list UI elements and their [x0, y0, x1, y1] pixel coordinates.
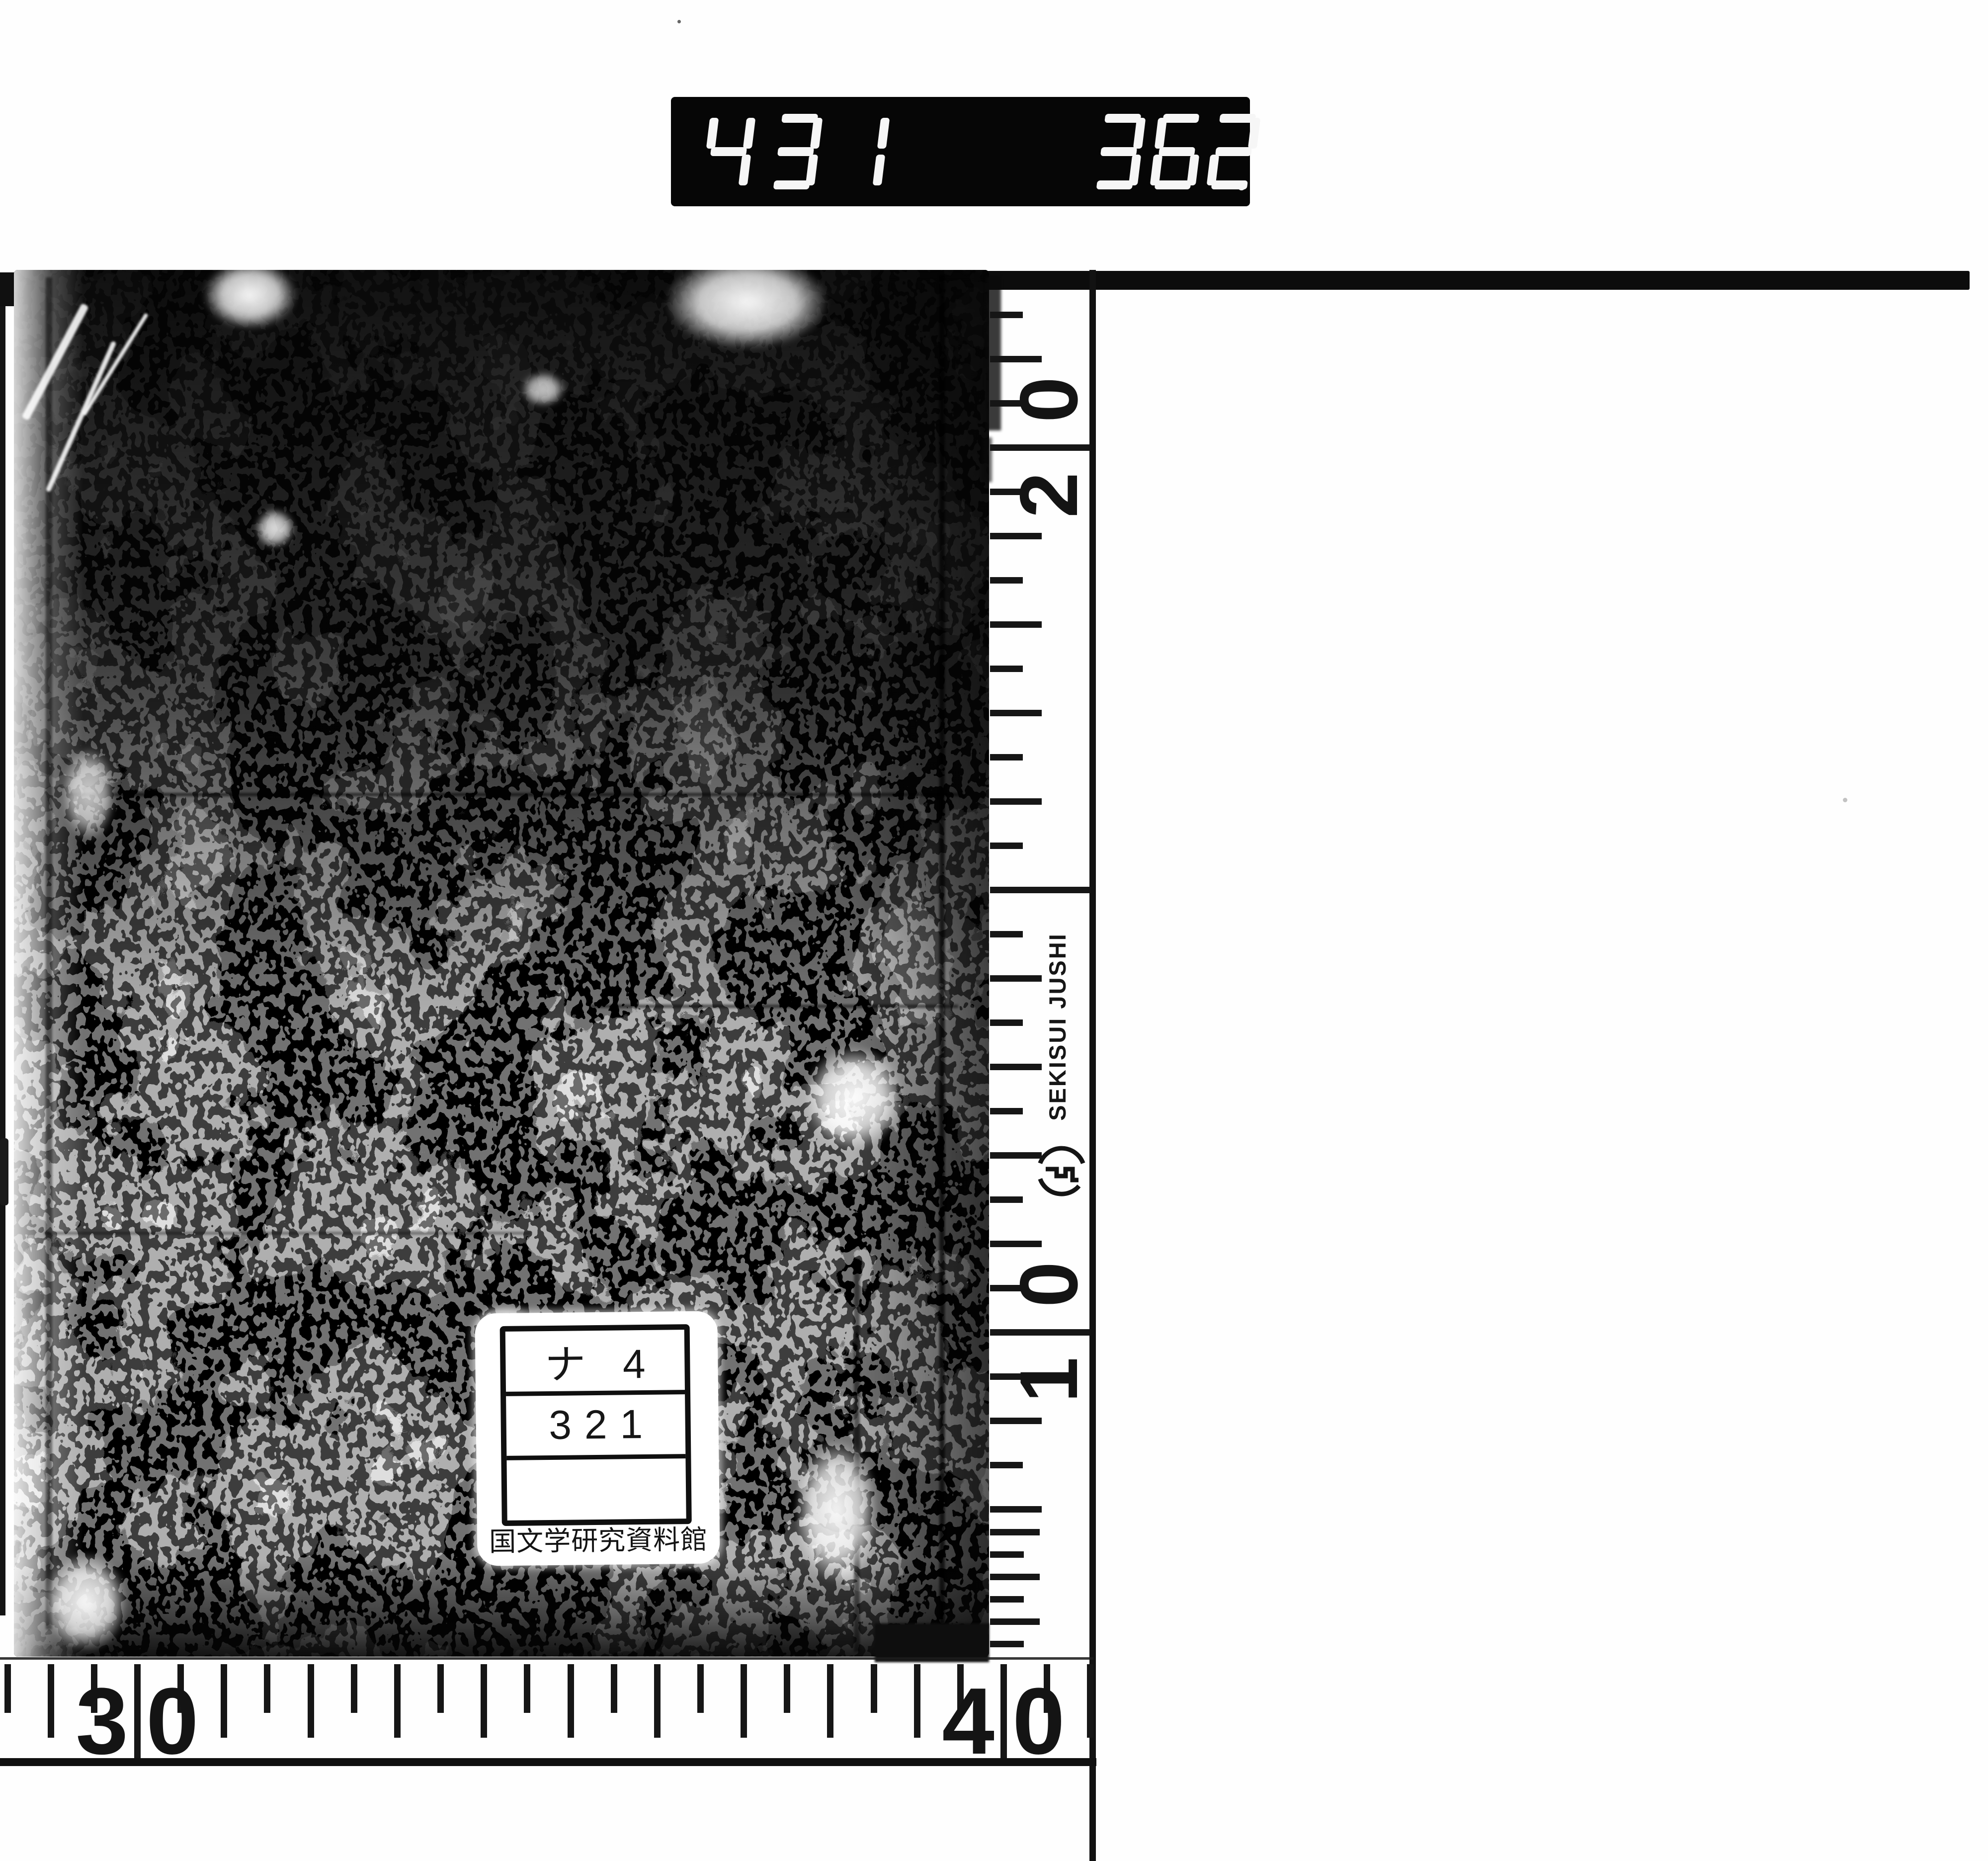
wear-patch — [255, 508, 295, 548]
ruler-tick — [990, 1596, 1024, 1603]
ruler-number-digit: 4 — [910, 1674, 994, 1769]
ruler-tick — [990, 887, 1089, 893]
ruler-tick — [741, 1664, 747, 1738]
ruler-tick — [134, 1664, 141, 1759]
ruler-tick — [697, 1664, 704, 1713]
ruler-tick — [1000, 1664, 1007, 1759]
horizontal-crease — [69, 793, 963, 796]
digit-segment — [781, 114, 818, 123]
digit-segment — [739, 155, 751, 185]
ruler-tick — [437, 1664, 444, 1713]
ruler-tick — [784, 1664, 790, 1713]
scan-edge-blob — [0, 272, 15, 306]
digit-segment — [877, 118, 890, 149]
ruler-tick — [990, 1196, 1023, 1203]
scan-edge-top-bar — [967, 271, 1970, 290]
dust-speck — [1843, 798, 1847, 802]
scanned-page: ナ 4 321 国文学研究資料館 0201 SEKISUI JUSHI 3040 — [0, 0, 1988, 1861]
wear-patch — [521, 372, 566, 407]
wear-patch — [61, 747, 116, 842]
digit-segment — [1104, 114, 1141, 123]
ruler-number-digit: 3 — [44, 1674, 128, 1769]
digit-segment — [1219, 114, 1256, 123]
label-row-2: 321 — [506, 1394, 685, 1460]
ruler-tick — [990, 621, 1042, 628]
horizontal-ruler-bottom-line — [0, 1758, 1096, 1766]
counter-digit — [1150, 114, 1205, 189]
ruler-tick — [568, 1664, 574, 1738]
ruler-tick — [351, 1664, 357, 1713]
ruler-tick — [990, 1152, 1042, 1159]
digit-segment — [773, 180, 810, 189]
digit-segment — [1155, 180, 1191, 189]
ruler-tick — [990, 1019, 1023, 1026]
ruler-tick — [990, 1574, 1040, 1580]
digit-segment — [1187, 155, 1200, 185]
book-edge-smudge — [986, 276, 1001, 430]
horizontal-crease — [44, 1232, 531, 1235]
ruler-number: 02 — [1006, 360, 1091, 535]
ruler-number: 01 — [1006, 1245, 1091, 1420]
counter-digit — [835, 114, 891, 189]
ruler-tick — [990, 798, 1042, 805]
counter-digit — [1206, 114, 1261, 189]
ruler-tick — [990, 1551, 1024, 1558]
wear-patch — [804, 1045, 904, 1150]
label-row-3 — [506, 1458, 686, 1520]
ruler-tick — [990, 1108, 1023, 1114]
ruler-tick — [264, 1664, 270, 1713]
digit-segment — [1096, 180, 1133, 189]
digit-segment — [1162, 114, 1199, 123]
ruler-tick — [990, 312, 1023, 318]
wear-patch — [794, 1438, 879, 1582]
ruler-number-digit: 1 — [1009, 1338, 1088, 1422]
ruler-tick — [611, 1664, 617, 1713]
ruler-tick — [481, 1664, 487, 1738]
ruler-tick — [827, 1664, 833, 1738]
counter-digit — [701, 114, 756, 189]
sekisui-logo-icon — [1035, 1144, 1088, 1198]
digit-segment — [777, 147, 814, 156]
decimal-point — [1238, 182, 1245, 190]
ruler-tick — [990, 1641, 1024, 1647]
dust-speck — [677, 20, 681, 23]
digit-segment — [1215, 147, 1252, 156]
ruler-number-digit: 0 — [1012, 1674, 1097, 1769]
frame-counter-display — [671, 97, 1250, 206]
scan-edge-left-line — [0, 272, 5, 1615]
ruler-number-digit: 2 — [1009, 453, 1088, 537]
ruler-tick — [654, 1664, 661, 1738]
ruler-tick — [871, 1664, 877, 1713]
ruler-tick — [394, 1664, 401, 1738]
book-bottom-edge-overlap — [875, 1623, 989, 1662]
ruler-tick — [990, 1462, 1023, 1468]
scan-edge-blob — [0, 1138, 8, 1205]
ruler-tick — [990, 931, 1023, 937]
ruler-tick — [308, 1664, 314, 1738]
institution-caption: 国文学研究資料館 — [477, 1517, 720, 1559]
digit-segment — [873, 155, 886, 185]
ruler-brand-text: SEKISUI JUSHI — [1020, 910, 1094, 1143]
spine-crease — [939, 275, 945, 1652]
ruler-tick — [990, 754, 1023, 761]
digit-segment — [1155, 118, 1167, 149]
counter-digit — [1091, 114, 1147, 189]
digit-segment — [710, 147, 747, 156]
ruler-number-digit: 0 — [1009, 357, 1088, 442]
digit-segment — [706, 118, 719, 149]
ruler-number-digit: 0 — [146, 1674, 231, 1769]
digit-segment — [1159, 147, 1195, 156]
ruler-tick — [524, 1664, 530, 1713]
ruler-tick — [990, 1618, 1040, 1625]
call-number-label: ナ 4 321 国文学研究資料館 — [475, 1311, 720, 1566]
horizontal-ruler-top-line — [0, 1657, 1093, 1660]
ruler-tick — [990, 1529, 1040, 1535]
ruler-tick — [4, 1664, 11, 1713]
digit-segment — [1100, 147, 1137, 156]
wear-patch — [44, 1552, 128, 1652]
counter-digit — [768, 114, 824, 189]
ruler-tick — [990, 666, 1023, 672]
ruler-tick — [990, 710, 1042, 716]
call-number-table: ナ 4 321 — [500, 1324, 692, 1526]
label-row-1: ナ 4 — [505, 1330, 685, 1396]
ruler-tick — [990, 577, 1023, 584]
horizontal-crease — [590, 1005, 958, 1008]
ruler-tick — [990, 843, 1023, 849]
digit-segment — [743, 118, 756, 149]
ruler-tick — [990, 1506, 1042, 1513]
ruler-number-digit: 0 — [1009, 1242, 1088, 1327]
